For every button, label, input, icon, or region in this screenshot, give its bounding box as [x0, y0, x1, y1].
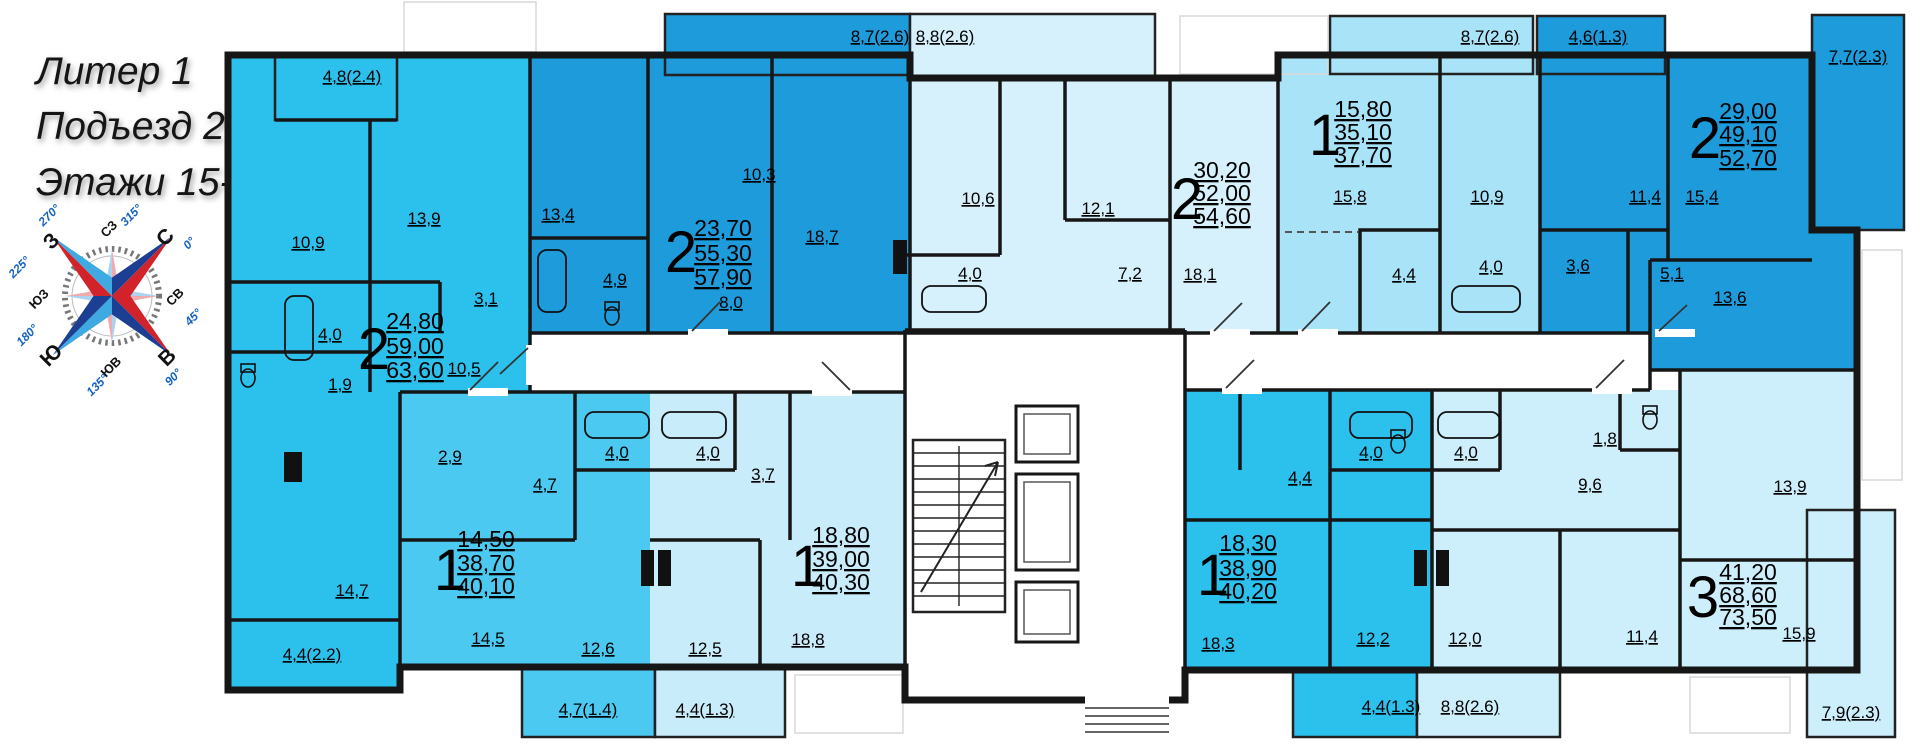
- area-full: 37,70: [1334, 142, 1392, 168]
- room-label: 10,6: [961, 189, 994, 208]
- area-full: 40,30: [812, 569, 870, 595]
- room-label: 8,7(2.6): [851, 27, 910, 46]
- area-full: 63,60: [386, 357, 444, 383]
- building-entrance: [1085, 694, 1169, 732]
- room-label: 4,4(1.3): [1362, 697, 1421, 716]
- room-label: 4,4(2.2): [283, 645, 342, 664]
- room-label: 4,8(2.4): [323, 67, 382, 86]
- area-full: 40,20: [1219, 578, 1277, 604]
- compass-label-sw: ЮЗ: [26, 286, 52, 312]
- area-full: 73,50: [1719, 604, 1777, 630]
- room-label: 10,3: [742, 165, 775, 184]
- room-label: 1,9: [328, 375, 352, 394]
- room-label: 18,7: [805, 227, 838, 246]
- compass-degree-315: 315°: [117, 201, 145, 229]
- room-label: 4,0: [958, 264, 982, 283]
- room-label: 12,6: [581, 639, 614, 658]
- room-label: 4,0: [696, 443, 720, 462]
- room-label: 13,9: [407, 209, 440, 228]
- apartment-c-area: [400, 392, 650, 667]
- room-label: 4,7: [533, 475, 557, 494]
- room-label: 15,4: [1685, 187, 1718, 206]
- room-label: 2,9: [438, 447, 462, 466]
- room-label: 4,9: [603, 270, 627, 289]
- room-label: 13,4: [541, 205, 574, 224]
- room-label: 3,1: [474, 289, 498, 308]
- room-label: 4,4: [1288, 468, 1312, 487]
- room-label: 5,1: [1660, 264, 1684, 283]
- apartment-number: 2: [665, 220, 697, 285]
- room-label: 8,0: [719, 293, 743, 312]
- room-label: 4,0: [1479, 257, 1503, 276]
- room-label: 4,7(1.4): [559, 700, 618, 719]
- compass-degree-45: 45°: [181, 306, 205, 330]
- room-label: 15,8: [1333, 187, 1366, 206]
- room-label: 11,4: [1629, 187, 1661, 206]
- room-label: 3,7: [751, 465, 775, 484]
- area-living: 14,50: [457, 526, 515, 552]
- compass-label-ne: СВ: [163, 285, 187, 309]
- room-label: 7,9(2.3): [1822, 703, 1881, 722]
- compass-label-nw: СЗ: [97, 217, 120, 240]
- room-label: 11,4: [1626, 627, 1658, 646]
- area-full: 54,60: [1193, 203, 1251, 229]
- room-label: 15,9: [1782, 624, 1815, 643]
- room-label: 4,0: [1454, 443, 1478, 462]
- compass-label-e: В: [154, 344, 181, 371]
- room-label: 14,5: [471, 629, 504, 648]
- room-label: 1,8: [1593, 429, 1617, 448]
- room-label: 10,9: [291, 233, 324, 252]
- room-label: 8,7(2.6): [1461, 27, 1520, 46]
- room-label: 4,4: [1392, 265, 1416, 284]
- room-label: 4,0: [318, 325, 342, 344]
- room-label: 10,5: [447, 359, 480, 378]
- area-total: 59,00: [386, 333, 444, 359]
- room-label: 4,4(1.3): [676, 700, 735, 719]
- room-label: 12,1: [1081, 199, 1114, 218]
- room-label: 12,2: [1356, 629, 1389, 648]
- room-label: 12,0: [1448, 629, 1481, 648]
- room-label: 18,1: [1183, 265, 1216, 284]
- apartment-number: 2: [1689, 106, 1721, 171]
- room-label: 13,6: [1713, 288, 1746, 307]
- room-label: 4,6(1.3): [1569, 27, 1628, 46]
- area-full: 52,70: [1719, 145, 1777, 171]
- compass-degree-180: 180°: [13, 321, 41, 349]
- compass-label-w: З: [39, 229, 65, 255]
- room-label: 18,3: [1201, 634, 1234, 653]
- room-label: 3,6: [1566, 256, 1590, 275]
- compass-degree-90: 90°: [162, 366, 185, 389]
- compass-rose: С СВ В ЮВ Ю ЮЗ З СЗ 0° 45° 90° 135° 180°…: [0, 177, 231, 415]
- room-label: 13,9: [1773, 477, 1806, 496]
- apartment-number: 3: [1687, 565, 1719, 630]
- corridor-left: [532, 336, 905, 389]
- room-label: 8,8(2.6): [1441, 697, 1500, 716]
- room-label: 12,5: [688, 639, 721, 658]
- area-full: 40,10: [457, 573, 515, 599]
- room-label: 4,0: [605, 443, 629, 462]
- area-living: 18,80: [812, 522, 870, 548]
- room-label: 10,9: [1470, 187, 1503, 206]
- area-living: 18,30: [1219, 530, 1277, 556]
- area-full: 57,90: [694, 264, 752, 290]
- balcony-e-top: [910, 14, 1155, 78]
- room-label: 9,6: [1578, 475, 1602, 494]
- compass-degree-270: 270°: [35, 201, 63, 229]
- area-total: 55,30: [694, 240, 752, 266]
- floor-plan: 4,8(2.4) 10,9 13,9 4,0 1,9 3,1 10,5 14,7…: [0, 0, 1920, 747]
- room-label: 14,7: [335, 581, 368, 600]
- area-living: 24,80: [386, 308, 444, 334]
- corridor-right: [1187, 335, 1648, 388]
- compass-degree-225: 225°: [5, 253, 33, 281]
- room-label: 8,8(2.6): [916, 27, 975, 46]
- room-label: 7,2: [1118, 264, 1142, 283]
- area-total: 49,10: [1719, 121, 1777, 147]
- apartment-b-area: [530, 55, 910, 333]
- room-label: 18,8: [791, 630, 824, 649]
- area-living: 23,70: [694, 215, 752, 241]
- compass-degree-0: 0°: [180, 234, 198, 252]
- compass-label-n: С: [152, 224, 179, 251]
- room-label: 4,0: [1359, 443, 1383, 462]
- room-label: 7,7(2.3): [1829, 47, 1888, 66]
